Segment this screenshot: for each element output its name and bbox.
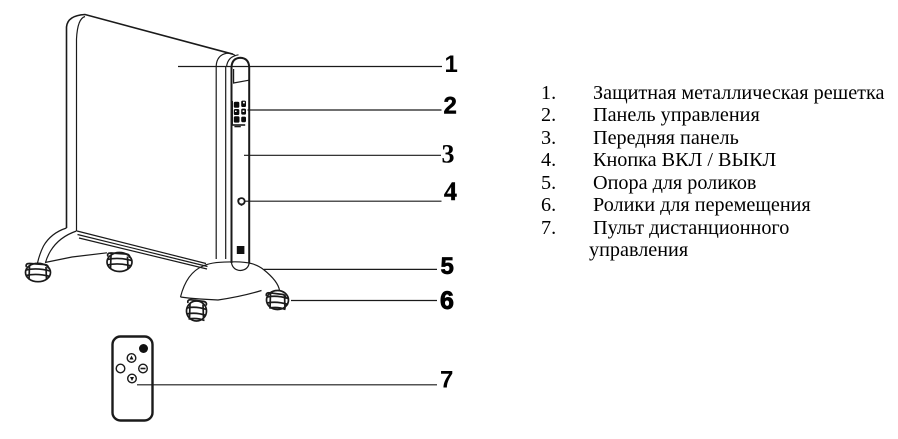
svg-text:3: 3 [442, 139, 455, 168]
svg-text:6: 6 [440, 287, 454, 315]
svg-text:5: 5 [441, 253, 454, 280]
svg-text:2: 2 [444, 93, 457, 120]
svg-text:4: 4 [444, 177, 457, 206]
svg-text:7: 7 [440, 367, 453, 394]
svg-text:1: 1 [445, 51, 458, 78]
